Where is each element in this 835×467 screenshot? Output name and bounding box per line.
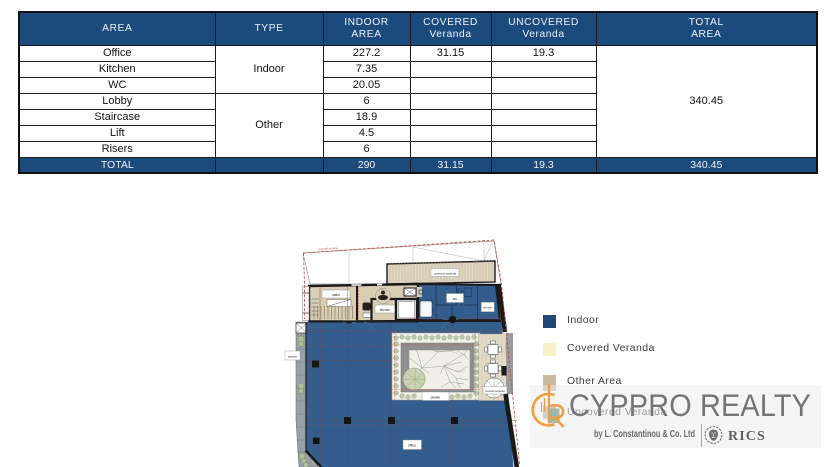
- svg-text:wc: wc: [453, 297, 457, 301]
- svg-text:office: office: [408, 444, 416, 448]
- svg-text:covered veranda: covered veranda: [434, 272, 457, 276]
- svg-text:planter: planter: [431, 395, 442, 399]
- svg-text:planter: planter: [288, 354, 297, 358]
- svg-text:covered terrace: covered terrace: [318, 246, 338, 251]
- svg-text:covered veranda: covered veranda: [485, 389, 505, 393]
- svg-text:RICS: RICS: [728, 429, 766, 444]
- svg-text:kitchen: kitchen: [380, 308, 390, 312]
- svg-text:lift/riser: lift/riser: [483, 306, 492, 310]
- svg-text:stairs: stairs: [332, 293, 340, 297]
